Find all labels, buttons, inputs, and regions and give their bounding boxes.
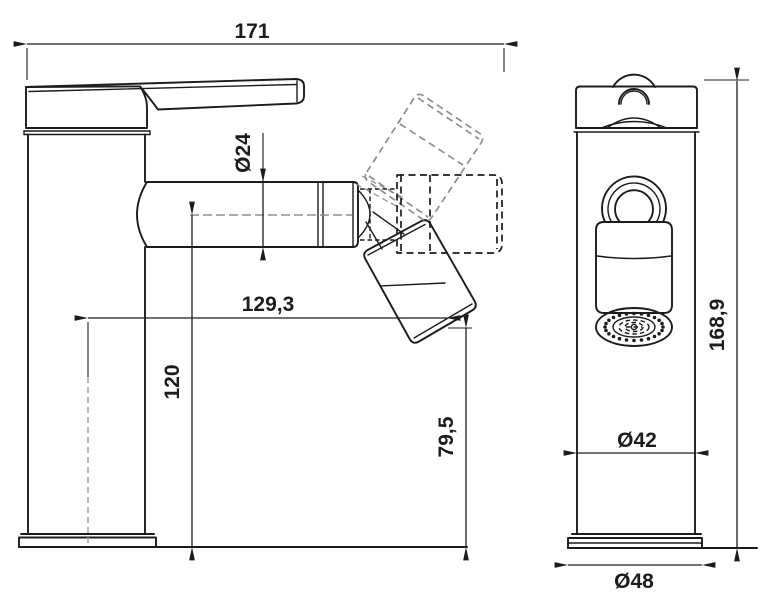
aerator-dot xyxy=(607,319,611,323)
aerator-dot xyxy=(625,312,629,316)
aerator-dot xyxy=(661,325,665,329)
faucet-body-side xyxy=(28,135,145,535)
aerator-head-down-position xyxy=(364,220,476,343)
aerator-dot xyxy=(660,322,664,326)
faucet-base-side xyxy=(19,534,467,547)
aerator-dot xyxy=(653,316,657,320)
aerator-dot xyxy=(607,332,611,336)
aerator-head-up-ghost xyxy=(356,94,483,220)
aerator-dot xyxy=(612,316,616,320)
dimension-overall-length: 171 xyxy=(27,20,504,80)
handle-lever xyxy=(26,79,304,110)
aerator-dot xyxy=(603,325,607,329)
aerator-dot xyxy=(632,339,636,343)
dimension-spout-axis-height: 120 xyxy=(161,215,192,547)
dimension-label-base-diameter: Ø48 xyxy=(614,570,654,593)
faucet-base-front xyxy=(568,534,757,548)
dimension-label-overall-height: 168,9 xyxy=(706,299,729,352)
bidet-mixer-technical-drawing: 171 Ø24 129,3 120 79,5 168,9 xyxy=(0,0,759,600)
dimension-label-overall-length: 171 xyxy=(234,20,269,43)
dimension-label-spout-axis-height: 120 xyxy=(161,364,184,399)
aerator-dot xyxy=(625,338,629,342)
dimension-base-diameter: Ø48 xyxy=(568,565,702,593)
aerator-dot xyxy=(604,322,608,326)
dimension-spout-diameter: Ø24 xyxy=(232,133,263,247)
dimension-aerator-clearance: 79,5 xyxy=(435,328,472,547)
aerator-dot xyxy=(612,335,616,339)
aerator-dot xyxy=(657,332,661,336)
aerator-dot xyxy=(657,319,661,323)
spout xyxy=(137,182,358,247)
dimension-overall-height: 168,9 xyxy=(704,80,749,548)
aerator-dot xyxy=(640,312,644,316)
aerator-dot xyxy=(604,329,608,333)
aerator-dot xyxy=(618,314,622,318)
aerator-dot xyxy=(653,335,657,339)
dimension-body-diameter: Ø42 xyxy=(577,429,695,453)
aerator-dot xyxy=(632,312,636,316)
aerator-front xyxy=(596,176,672,346)
dimension-spout-reach: 129,3 xyxy=(88,293,447,546)
dimension-label-spout-diameter: Ø24 xyxy=(232,133,255,173)
aerator-dot xyxy=(618,337,622,341)
faucet-body-front xyxy=(577,132,695,534)
technical-drawing-page: 171 Ø24 129,3 120 79,5 168,9 xyxy=(0,0,759,600)
aerator-dot xyxy=(660,329,664,333)
aerator-dot xyxy=(647,337,651,341)
dimension-label-body-diameter: Ø42 xyxy=(617,429,657,452)
dimension-label-aerator-clearance: 79,5 xyxy=(435,416,458,457)
aerator-dot xyxy=(640,338,644,342)
dimension-label-spout-reach: 129,3 xyxy=(242,293,295,316)
aerator-dot xyxy=(647,314,651,318)
handle-hub-front xyxy=(574,75,699,132)
dimensions: 171 Ø24 129,3 120 79,5 168,9 xyxy=(27,20,749,593)
handle-skirt xyxy=(24,86,150,134)
